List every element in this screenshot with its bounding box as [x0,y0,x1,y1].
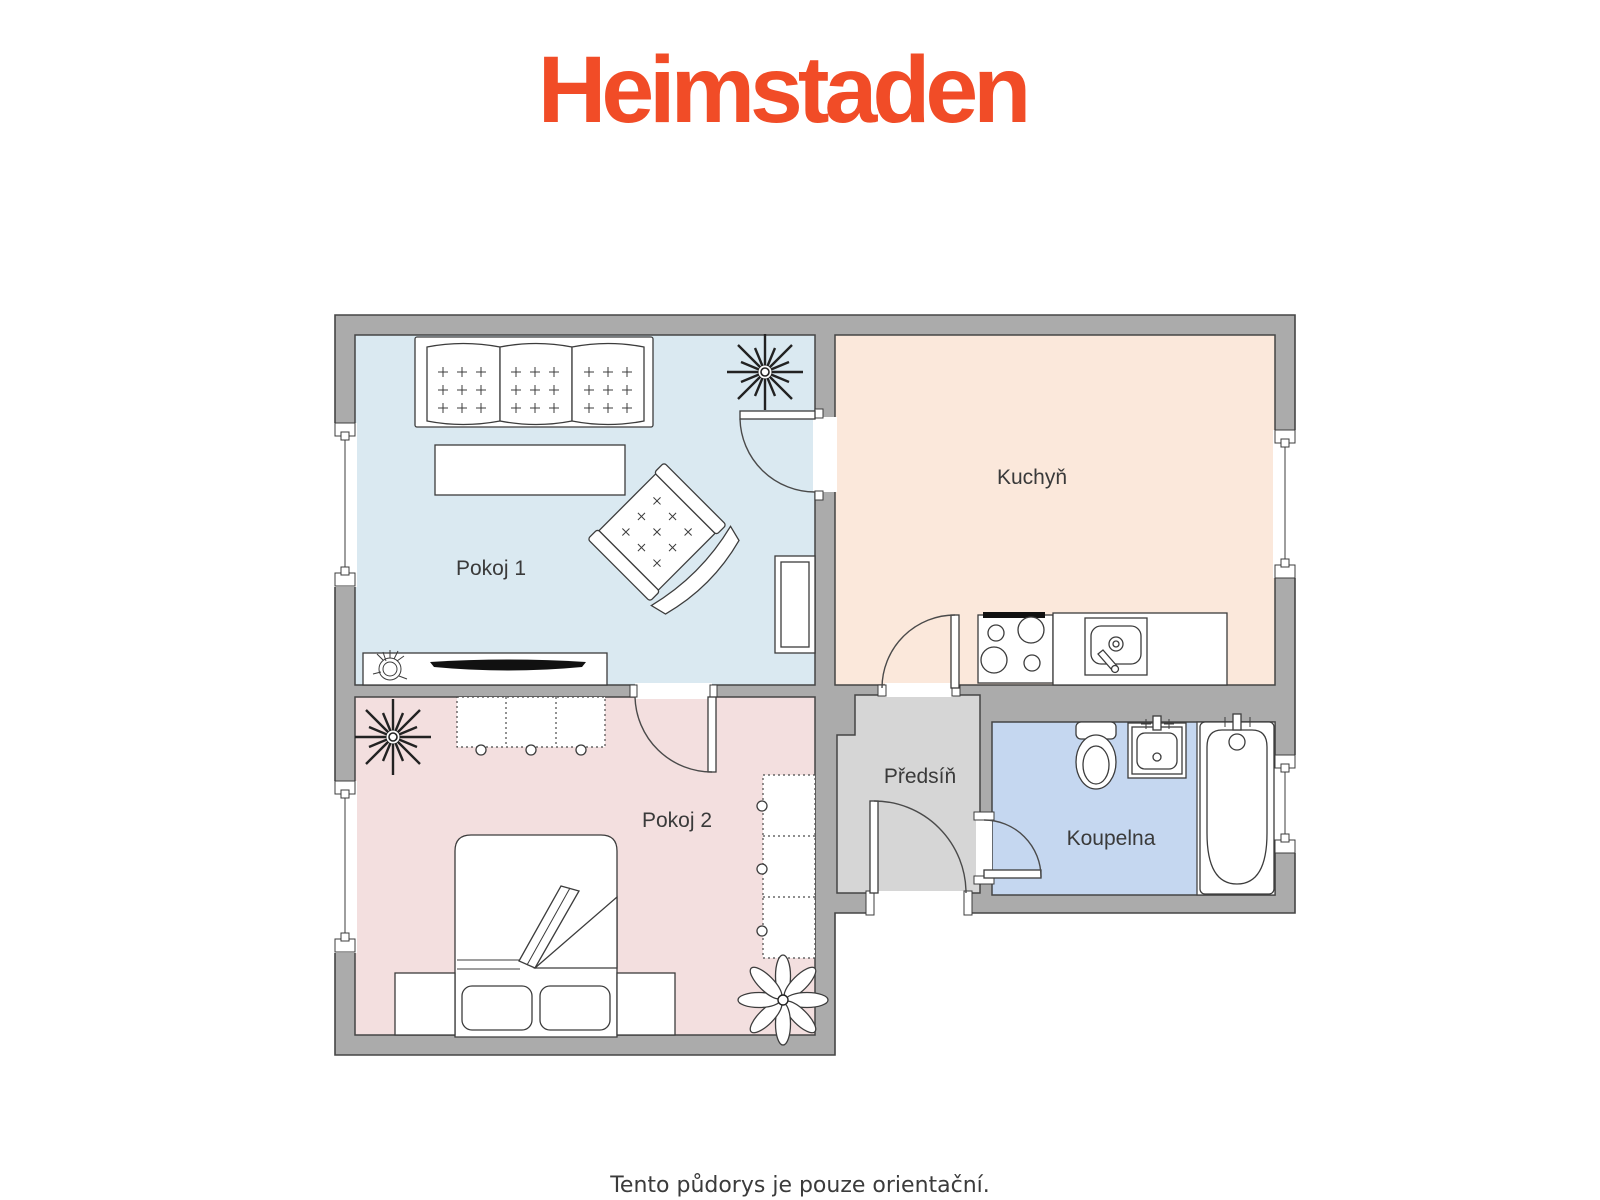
wardrobe [757,775,815,958]
label-pokoj2: Pokoj 2 [642,809,712,832]
bathroom-sink [1128,716,1186,778]
tv-stand [363,650,607,685]
window-pokoj2-left [333,781,357,953]
plant-flower-pokoj2 [738,955,828,1045]
toilet [1076,722,1116,789]
label-pokoj1: Pokoj 1 [456,557,526,580]
kitchen-counter-sink [1053,613,1227,685]
coffee-table [435,445,625,495]
label-predsin: Předsíň [884,765,956,788]
dresser [457,697,605,755]
stove [978,612,1053,683]
disclaimer-text: Tento půdorys je pouze orientační. [609,1173,990,1198]
nightstand-right [617,973,675,1035]
room-predsin-floor [837,695,980,893]
nightstand-left [395,973,455,1035]
bathtub [1200,714,1274,894]
bed [455,835,617,1037]
label-kuchyn: Kuchyň [997,466,1067,489]
window-kuchyn-right [1273,430,1297,578]
plant-pokoj2 [355,699,431,775]
pillow [462,986,532,1030]
tall-cabinet [775,556,815,653]
sofa [415,337,653,427]
window-koupelna-right [1273,755,1297,853]
pillow [540,986,610,1030]
window-pokoj1-left [333,423,357,587]
heimstaden-logo: Heimstaden [538,37,1027,143]
plant-pokoj1 [727,334,803,410]
label-koupelna: Koupelna [1067,827,1156,850]
floorplan-canvas: Heimstaden [0,0,1600,1200]
floorplan-page: Heimstaden [0,0,1600,1200]
